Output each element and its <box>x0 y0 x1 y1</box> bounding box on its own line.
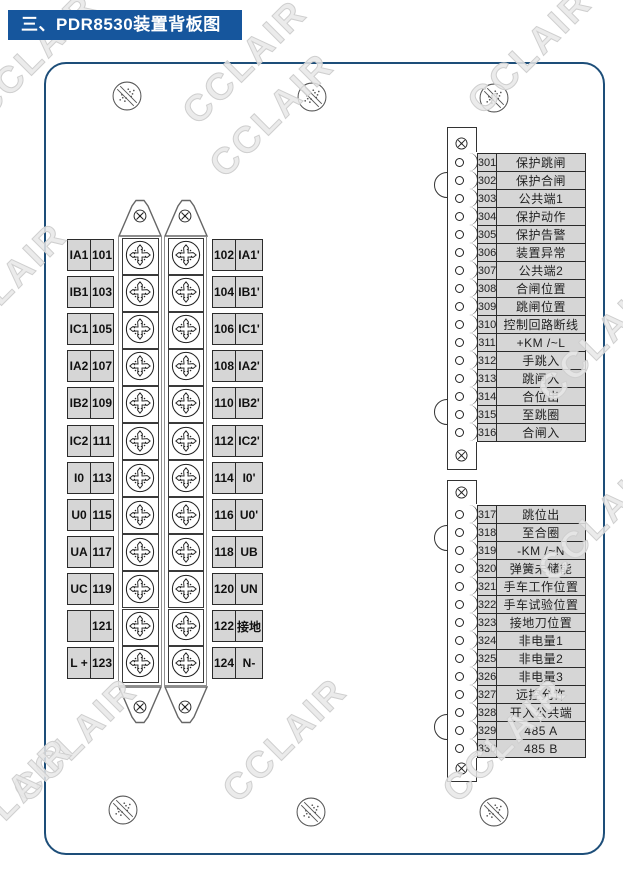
terminal-label: 公共端1 <box>496 189 586 208</box>
terminal-label-left: U0 <box>67 499 91 531</box>
terminal-hole <box>455 510 464 519</box>
terminal-label-right: U0' <box>235 499 263 531</box>
terminal-label-right: IB2' <box>235 387 263 419</box>
terminal-screw-icon <box>123 312 157 346</box>
terminal-number-left: 105 <box>90 313 114 345</box>
terminal-screw-icon <box>123 646 157 680</box>
terminal-screw-icon <box>169 498 203 532</box>
terminal-screw-icon <box>123 238 157 272</box>
terminal-label: 至合圈 <box>496 523 586 542</box>
terminal-label: 非电量1 <box>496 631 586 650</box>
mount-screw-icon <box>477 795 511 829</box>
tab-screw-icon <box>177 208 193 224</box>
terminal-number: 311 <box>477 333 497 352</box>
terminal-hole <box>455 338 464 347</box>
terminal-number: 320 <box>477 559 497 578</box>
terminal-number: 326 <box>477 667 497 686</box>
rail-screw-icon <box>454 485 469 500</box>
terminal-number-right: 112 <box>212 425 236 457</box>
terminal-label-right: IC2' <box>235 425 263 457</box>
terminal-label: 保护合闸 <box>496 171 586 190</box>
terminal-screw-icon <box>169 349 203 383</box>
terminal-screw-icon <box>123 572 157 606</box>
terminal-label: 控制回路断线 <box>496 315 586 334</box>
terminal-screw-icon <box>169 646 203 680</box>
terminal-number-right: 116 <box>212 499 236 531</box>
terminal-screw-icon <box>169 609 203 643</box>
terminal-screw-icon <box>123 424 157 458</box>
terminal-number-left: 107 <box>90 350 114 382</box>
terminal-screw-icon <box>169 535 203 569</box>
terminal-hole <box>455 564 464 573</box>
terminal-hole <box>455 410 464 419</box>
terminal-hole <box>455 726 464 735</box>
terminal-label: 接地刀位置 <box>496 613 586 632</box>
terminal-label: -KM /~N <box>496 541 586 560</box>
terminal-number: 322 <box>477 595 497 614</box>
terminal-number: 308 <box>477 279 497 298</box>
mount-screw-icon <box>294 795 328 829</box>
terminal-screw-icon <box>169 386 203 420</box>
terminal-hole <box>455 528 464 537</box>
terminal-label-right: IA2' <box>235 350 263 382</box>
terminal-number: 306 <box>477 243 497 262</box>
terminal-screw-icon <box>169 572 203 606</box>
terminal-label-left: IC1 <box>67 313 91 345</box>
terminal-number-right: 114 <box>212 462 236 494</box>
terminal-screw-icon <box>123 498 157 532</box>
terminal-hole <box>455 320 464 329</box>
section-title: 三、PDR8530装置背板图 <box>8 10 242 40</box>
terminal-number-left: 103 <box>90 276 114 308</box>
terminal-hole <box>455 248 464 257</box>
terminal-hole <box>455 266 464 275</box>
terminal-number: 323 <box>477 613 497 632</box>
terminal-label: 合闸位置 <box>496 279 586 298</box>
terminal-number: 301 <box>477 153 497 172</box>
terminal-number: 330 <box>477 739 497 758</box>
terminal-label: 合位出 <box>496 387 586 406</box>
terminal-hole <box>455 176 464 185</box>
terminal-number-right: 120 <box>212 573 236 605</box>
terminal-label-left <box>67 610 91 642</box>
terminal-number: 325 <box>477 649 497 668</box>
mount-screw-icon <box>106 793 140 827</box>
terminal-label: 至跳圈 <box>496 405 586 424</box>
terminal-label: 跳闸位置 <box>496 297 586 316</box>
terminal-number: 309 <box>477 297 497 316</box>
tab-screw-icon <box>177 699 193 715</box>
terminal-label-right: I0' <box>235 462 263 494</box>
terminal-label-right: IA1' <box>235 239 263 271</box>
mount-screw-icon <box>110 79 144 113</box>
terminal-number: 329 <box>477 721 497 740</box>
terminal-label-right: 接地 <box>235 610 263 642</box>
terminal-label: 跳闸入 <box>496 369 586 388</box>
rail-screw-icon <box>454 761 469 776</box>
terminal-screw-icon <box>169 312 203 346</box>
terminal-label: 公共端2 <box>496 261 586 280</box>
terminal-number-left: 101 <box>90 239 114 271</box>
terminal-number: 318 <box>477 523 497 542</box>
terminal-screw-icon <box>123 275 157 309</box>
terminal-label: 开入公共端 <box>496 703 586 722</box>
terminal-hole <box>455 428 464 437</box>
terminal-number-left: 123 <box>90 647 114 679</box>
terminal-label: 保护跳闸 <box>496 153 586 172</box>
terminal-hole <box>455 374 464 383</box>
terminal-number-left: 121 <box>90 610 114 642</box>
terminal-number-right: 102 <box>212 239 236 271</box>
terminal-number-right: 104 <box>212 276 236 308</box>
terminal-number: 324 <box>477 631 497 650</box>
terminal-number: 302 <box>477 171 497 190</box>
terminal-label: 手跳入 <box>496 351 586 370</box>
terminal-label: 保护动作 <box>496 207 586 226</box>
terminal-number: 319 <box>477 541 497 560</box>
terminal-screw-icon <box>123 461 157 495</box>
terminal-hole <box>455 672 464 681</box>
terminal-label-left: L + <box>67 647 91 679</box>
terminal-label: 非电量2 <box>496 649 586 668</box>
terminal-screw-icon <box>169 238 203 272</box>
terminal-label-right: IB1' <box>235 276 263 308</box>
terminal-label: 装置异常 <box>496 243 586 262</box>
terminal-hole <box>455 392 464 401</box>
terminal-label-right: N- <box>235 647 263 679</box>
terminal-hole <box>455 158 464 167</box>
rail-screw-icon <box>454 448 469 463</box>
terminal-label: 弹簧未储能 <box>496 559 586 578</box>
terminal-number-left: 109 <box>90 387 114 419</box>
terminal-number: 303 <box>477 189 497 208</box>
terminal-label: 485 A <box>496 721 586 740</box>
terminal-label: 485 B <box>496 739 586 758</box>
terminal-hole <box>455 582 464 591</box>
terminal-number-left: 119 <box>90 573 114 605</box>
terminal-number: 317 <box>477 505 497 524</box>
terminal-number-right: 118 <box>212 536 236 568</box>
terminal-label: 远控允许 <box>496 685 586 704</box>
terminal-number: 307 <box>477 261 497 280</box>
terminal-label-left: IC2 <box>67 425 91 457</box>
terminal-number-right: 122 <box>212 610 236 642</box>
terminal-screw-icon <box>123 386 157 420</box>
terminal-label: 合闸入 <box>496 423 586 442</box>
terminal-label: 非电量3 <box>496 667 586 686</box>
terminal-hole <box>455 546 464 555</box>
terminal-number: 305 <box>477 225 497 244</box>
terminal-screw-icon <box>169 461 203 495</box>
terminal-number: 314 <box>477 387 497 406</box>
terminal-number-left: 113 <box>90 462 114 494</box>
terminal-number: 328 <box>477 703 497 722</box>
terminal-screw-icon <box>123 535 157 569</box>
mount-screw-icon <box>295 80 329 114</box>
terminal-number-left: 117 <box>90 536 114 568</box>
terminal-hole <box>455 356 464 365</box>
terminal-number-left: 115 <box>90 499 114 531</box>
terminal-hole <box>455 744 464 753</box>
mount-screw-icon <box>477 81 511 115</box>
terminal-number: 304 <box>477 207 497 226</box>
terminal-label-left: IA1 <box>67 239 91 271</box>
terminal-number: 313 <box>477 369 497 388</box>
terminal-hole <box>455 654 464 663</box>
terminal-label: 跳位出 <box>496 505 586 524</box>
terminal-hole <box>455 600 464 609</box>
terminal-label: 手车试验位置 <box>496 595 586 614</box>
terminal-number-right: 110 <box>212 387 236 419</box>
terminal-number-right: 106 <box>212 313 236 345</box>
terminal-hole <box>455 230 464 239</box>
tab-screw-icon <box>132 208 148 224</box>
terminal-label-left: UC <box>67 573 91 605</box>
terminal-hole <box>455 212 464 221</box>
terminal-number: 312 <box>477 351 497 370</box>
terminal-label-left: IB1 <box>67 276 91 308</box>
terminal-label-left: IA2 <box>67 350 91 382</box>
terminal-hole <box>455 194 464 203</box>
terminal-label-right: UN <box>235 573 263 605</box>
terminal-screw-icon <box>123 349 157 383</box>
terminal-hole <box>455 636 464 645</box>
terminal-label: 手车工作位置 <box>496 577 586 596</box>
terminal-hole <box>455 618 464 627</box>
terminal-number: 315 <box>477 405 497 424</box>
terminal-screw-icon <box>169 424 203 458</box>
terminal-number-left: 111 <box>90 425 114 457</box>
terminal-hole <box>455 284 464 293</box>
rail-screw-icon <box>454 136 469 151</box>
backplane-diagram-page: 三、PDR8530装置背板图 IA1101102IA1'IB1103104IB1… <box>0 0 623 876</box>
terminal-label-right: IC1' <box>235 313 263 345</box>
terminal-hole <box>455 302 464 311</box>
terminal-number: 316 <box>477 423 497 442</box>
terminal-hole <box>455 708 464 717</box>
terminal-number: 310 <box>477 315 497 334</box>
terminal-label: +KM /~L <box>496 333 586 352</box>
terminal-screw-icon <box>123 609 157 643</box>
terminal-label-left: I0 <box>67 462 91 494</box>
terminal-number-right: 124 <box>212 647 236 679</box>
terminal-label: 保护告警 <box>496 225 586 244</box>
terminal-screw-icon <box>169 275 203 309</box>
terminal-number: 327 <box>477 685 497 704</box>
terminal-label-right: UB <box>235 536 263 568</box>
terminal-label-left: UA <box>67 536 91 568</box>
terminal-number: 321 <box>477 577 497 596</box>
tab-screw-icon <box>132 699 148 715</box>
terminal-number-right: 108 <box>212 350 236 382</box>
terminal-label-left: IB2 <box>67 387 91 419</box>
terminal-hole <box>455 690 464 699</box>
